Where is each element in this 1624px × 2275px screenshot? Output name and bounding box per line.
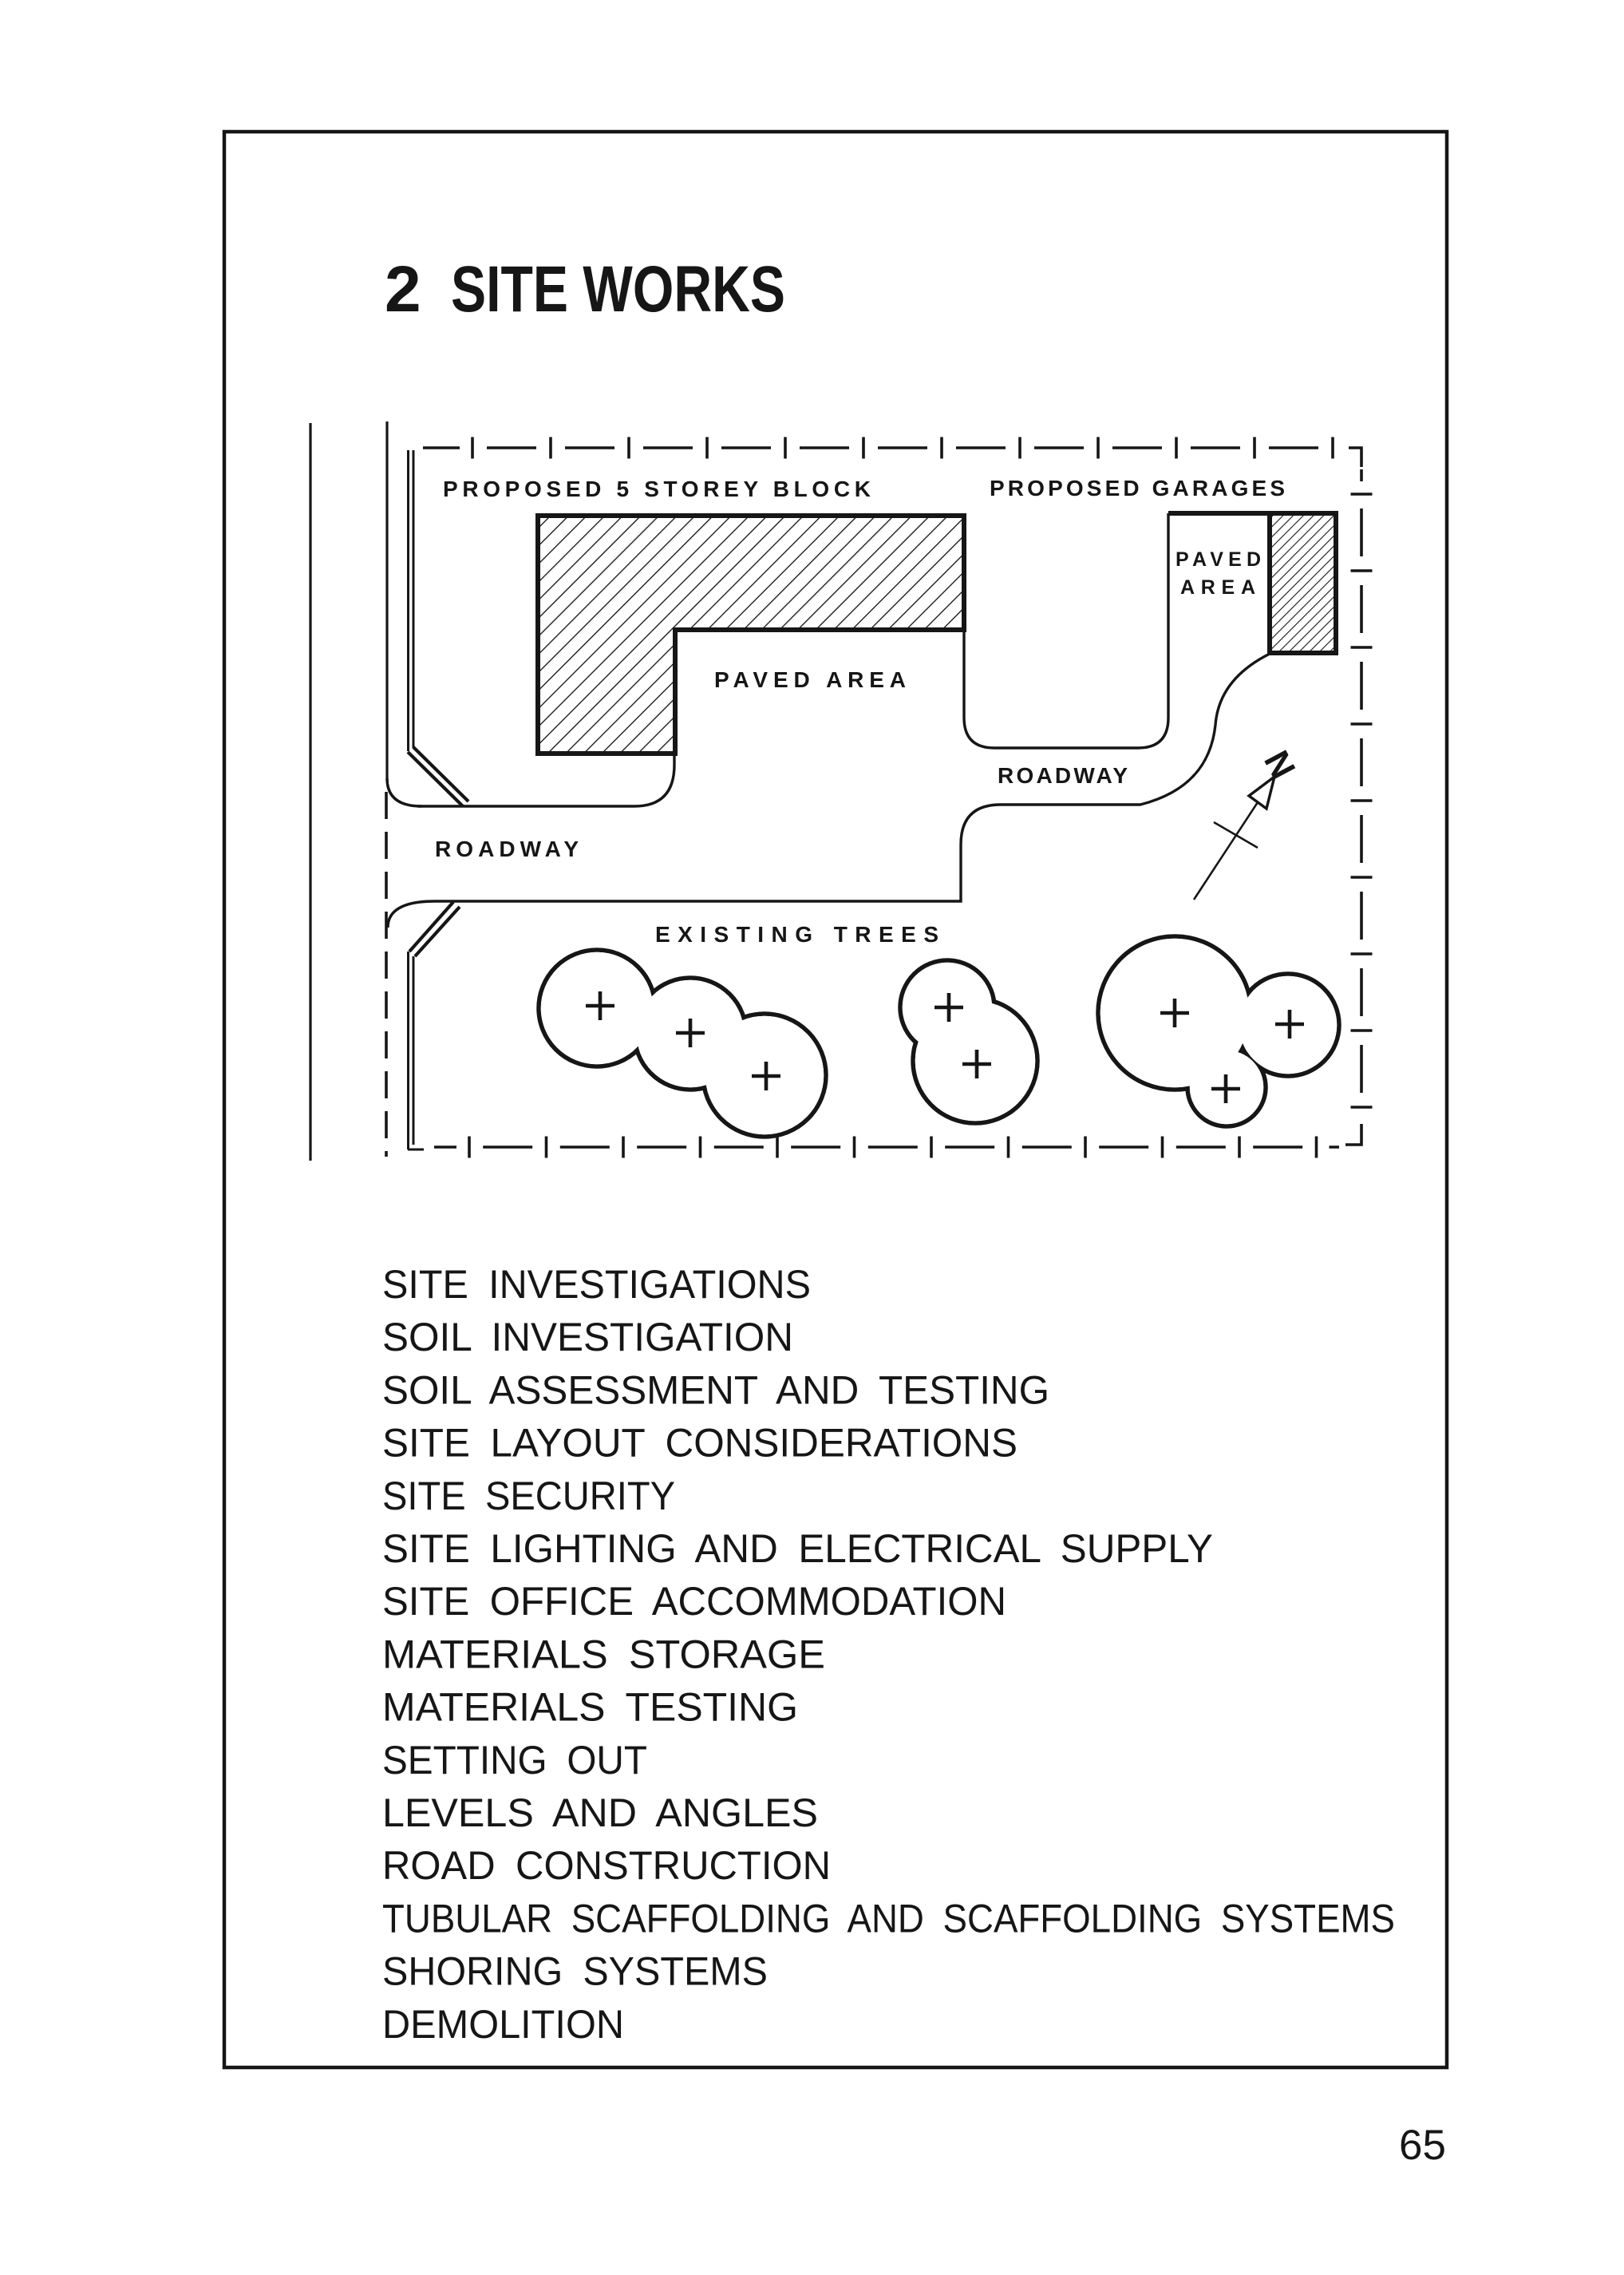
- svg-text:N: N: [1256, 745, 1302, 785]
- svg-text:SITE INVESTIGATIONS: SITE INVESTIGATIONS: [382, 1262, 811, 1307]
- svg-text:LEVELS AND ANGLES: LEVELS AND ANGLES: [382, 1790, 818, 1835]
- svg-text:PROPOSED GARAGES: PROPOSED GARAGES: [990, 476, 1285, 500]
- svg-text:PAVED AREA: PAVED AREA: [714, 667, 906, 692]
- svg-text:ROADWAY: ROADWAY: [998, 763, 1128, 788]
- svg-text:MATERIALS TESTING: MATERIALS TESTING: [382, 1685, 798, 1730]
- svg-text:2: 2: [385, 253, 421, 326]
- svg-text:SITE LAYOUT CONSIDERATIONS: SITE LAYOUT CONSIDERATIONS: [382, 1421, 1017, 1466]
- svg-text:SITE OFFICE ACCOMMODATION: SITE OFFICE ACCOMMODATION: [382, 1579, 1006, 1624]
- svg-text:SETTING OUT: SETTING OUT: [382, 1738, 647, 1782]
- svg-text:65: 65: [1399, 2122, 1446, 2169]
- svg-text:MATERIALS STORAGE: MATERIALS STORAGE: [382, 1632, 825, 1676]
- svg-text:PAVED: PAVED: [1176, 548, 1261, 571]
- svg-text:PROPOSED 5 STOREY BLOCK: PROPOSED 5 STOREY BLOCK: [443, 477, 871, 501]
- svg-text:SOIL INVESTIGATION: SOIL INVESTIGATION: [382, 1315, 793, 1359]
- svg-text:DEMOLITION: DEMOLITION: [382, 2002, 624, 2047]
- svg-text:SITE WORKS: SITE WORKS: [451, 253, 785, 326]
- svg-text:SITE SECURITY: SITE SECURITY: [382, 1474, 675, 1518]
- svg-text:SOIL ASSESSMENT AND TESTING: SOIL ASSESSMENT AND TESTING: [382, 1367, 1049, 1412]
- svg-text:TUBULAR SCAFFOLDING AND SCAFFO: TUBULAR SCAFFOLDING AND SCAFFOLDING SYST…: [382, 1896, 1395, 1941]
- svg-text:AREA: AREA: [1180, 576, 1255, 599]
- svg-text:SHORING SYSTEMS: SHORING SYSTEMS: [382, 1949, 768, 1994]
- svg-text:SITE LIGHTING AND ELECTRICAL S: SITE LIGHTING AND ELECTRICAL SUPPLY: [382, 1526, 1213, 1571]
- svg-text:EXISTING TREES: EXISTING TREES: [655, 922, 938, 947]
- svg-text:ROAD CONSTRUCTION: ROAD CONSTRUCTION: [382, 1843, 831, 1888]
- svg-text:ROADWAY: ROADWAY: [435, 837, 579, 861]
